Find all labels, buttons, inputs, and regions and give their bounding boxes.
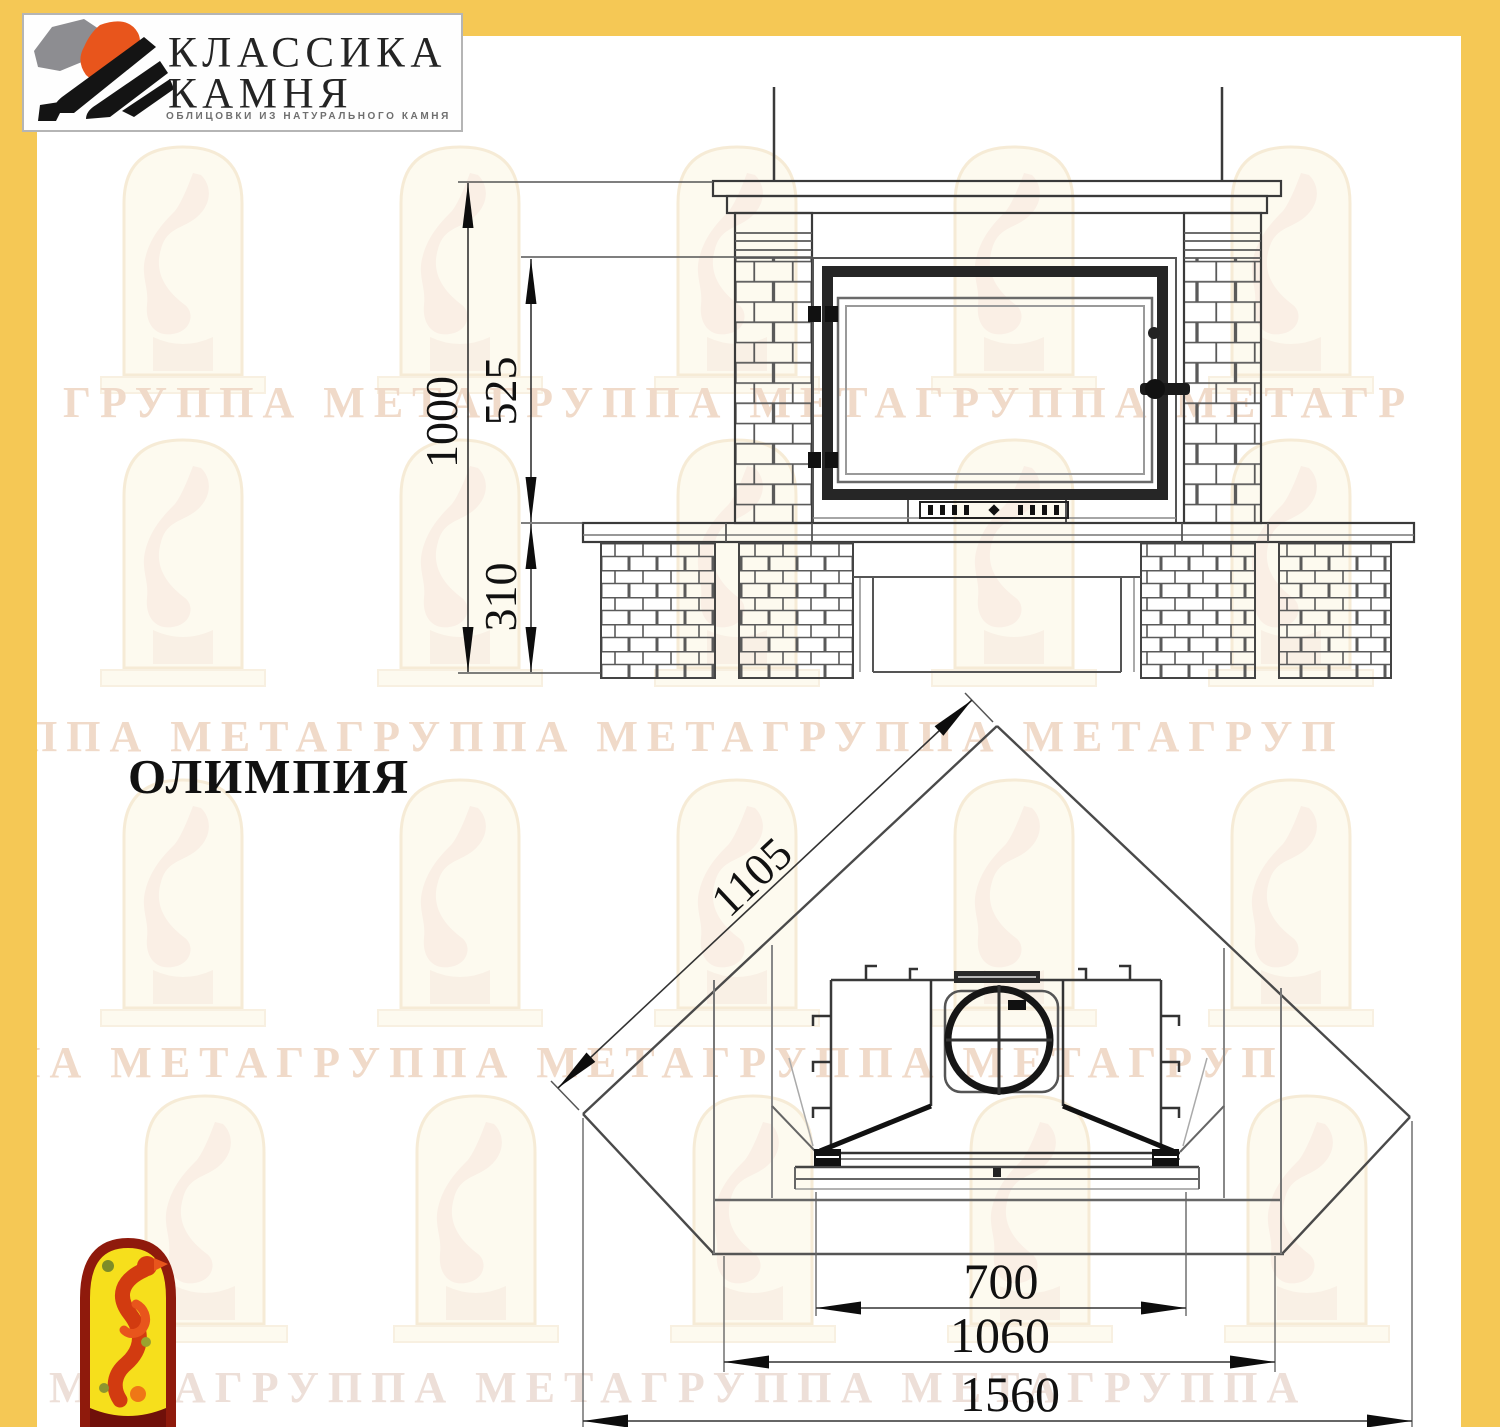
svg-text:1105: 1105 xyxy=(701,827,802,926)
svg-text:1560: 1560 xyxy=(960,1366,1060,1422)
svg-text:1000: 1000 xyxy=(416,376,467,468)
svg-text:1060: 1060 xyxy=(950,1307,1050,1363)
svg-text:310: 310 xyxy=(475,563,526,632)
svg-text:525: 525 xyxy=(475,357,526,426)
svg-text:700: 700 xyxy=(964,1253,1039,1309)
